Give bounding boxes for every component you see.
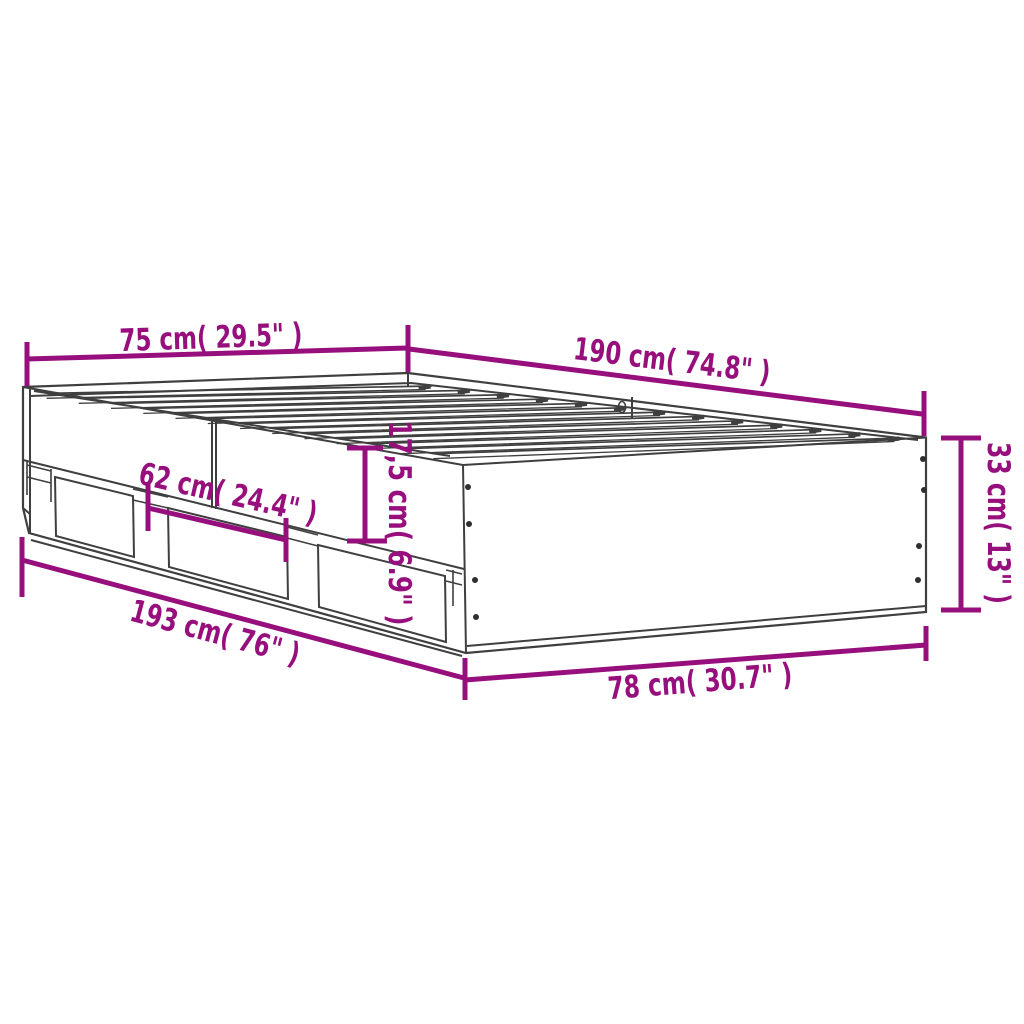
dimension-line (941, 438, 981, 610)
dimension-label-drawer-width: 62 cm( 24.4" ) (135, 456, 320, 532)
screw-dot (915, 577, 921, 583)
screw-dot (472, 577, 478, 583)
dimension-label-bottom-length: 193 cm( 76" ) (126, 593, 303, 673)
screw-dot (473, 614, 479, 620)
screw-dot (920, 456, 926, 462)
dimension-label-rail-height: 17,5 cm( 6.9" ) (381, 421, 417, 626)
dimension-rail-height: 17,5 cm( 6.9" ) (347, 421, 417, 626)
dimension-label-top-width: 75 cm( 29.5" ) (119, 317, 303, 359)
dimension-label-bottom-width: 78 cm( 30.7" ) (606, 657, 793, 707)
screw-dots (465, 456, 927, 620)
bed-dimension-diagram: 75 cm( 29.5" ) 190 cm( 74.8" ) 33 cm( 13… (0, 0, 1024, 1024)
dimension-label-side-height: 33 cm( 13" ) (980, 442, 1016, 604)
dimension-bottom-width: 78 cm( 30.7" ) (465, 626, 926, 707)
screw-dot (465, 484, 471, 490)
slats-bottom-edges (47, 390, 895, 459)
dimension-drawer-width: 62 cm( 24.4" ) (135, 456, 320, 562)
drawer-front-1 (55, 477, 134, 557)
screw-dot (916, 543, 922, 549)
screw-dot (466, 521, 472, 527)
dimension-side-height: 33 cm( 13" ) (941, 438, 1016, 610)
diagram-canvas: 75 cm( 29.5" ) 190 cm( 74.8" ) 33 cm( 13… (0, 0, 1024, 1024)
screw-dot (921, 487, 927, 493)
dimension-line (347, 448, 387, 541)
